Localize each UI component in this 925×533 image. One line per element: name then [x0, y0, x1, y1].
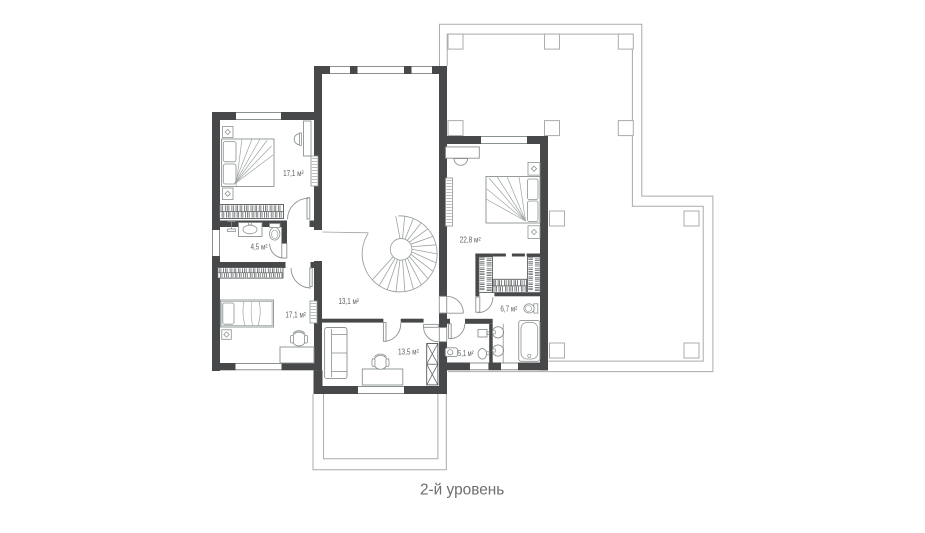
- svg-text:6,7 м²: 6,7 м²: [500, 305, 517, 314]
- svg-text:5,1 м²: 5,1 м²: [458, 349, 474, 358]
- svg-text:17,1 м²: 17,1 м²: [283, 169, 304, 178]
- svg-text:13,1 м²: 13,1 м²: [339, 297, 360, 306]
- svg-text:13,5 м²: 13,5 м²: [398, 348, 419, 357]
- svg-text:17,1 м²: 17,1 м²: [285, 310, 306, 319]
- svg-text:2-й уровень: 2-й уровень: [420, 482, 504, 499]
- svg-text:22,8 м²: 22,8 м²: [460, 235, 481, 244]
- svg-text:4,5 м²: 4,5 м²: [251, 243, 268, 252]
